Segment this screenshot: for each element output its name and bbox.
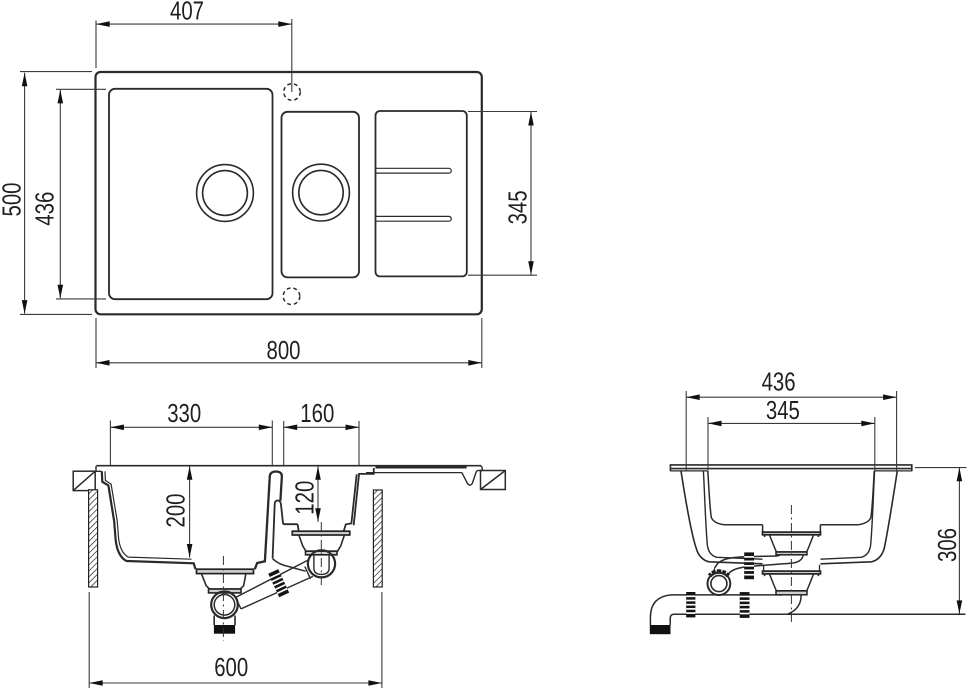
svg-text:330: 330 xyxy=(167,398,201,428)
svg-text:345: 345 xyxy=(766,395,800,425)
svg-text:500: 500 xyxy=(0,183,26,217)
svg-text:800: 800 xyxy=(267,335,301,365)
svg-text:600: 600 xyxy=(214,652,248,682)
svg-text:200: 200 xyxy=(161,494,191,528)
svg-text:407: 407 xyxy=(170,0,204,26)
svg-text:345: 345 xyxy=(502,190,532,224)
svg-text:306: 306 xyxy=(932,528,962,562)
svg-text:160: 160 xyxy=(300,398,334,428)
svg-text:436: 436 xyxy=(29,192,59,226)
svg-text:436: 436 xyxy=(762,367,796,397)
svg-text:120: 120 xyxy=(290,481,320,515)
